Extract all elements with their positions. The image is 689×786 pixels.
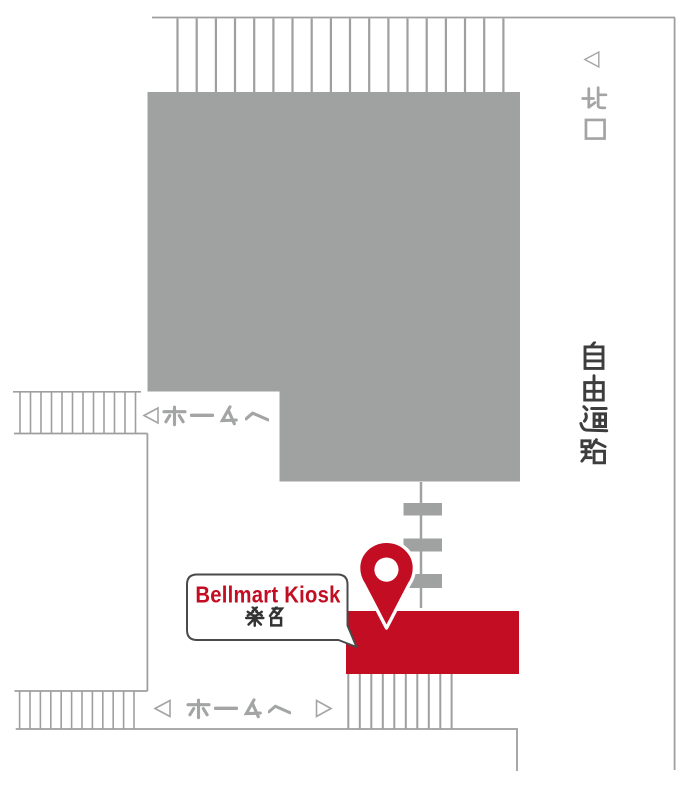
svg-text:Bellmart Kiosk: Bellmart Kiosk xyxy=(195,581,341,608)
